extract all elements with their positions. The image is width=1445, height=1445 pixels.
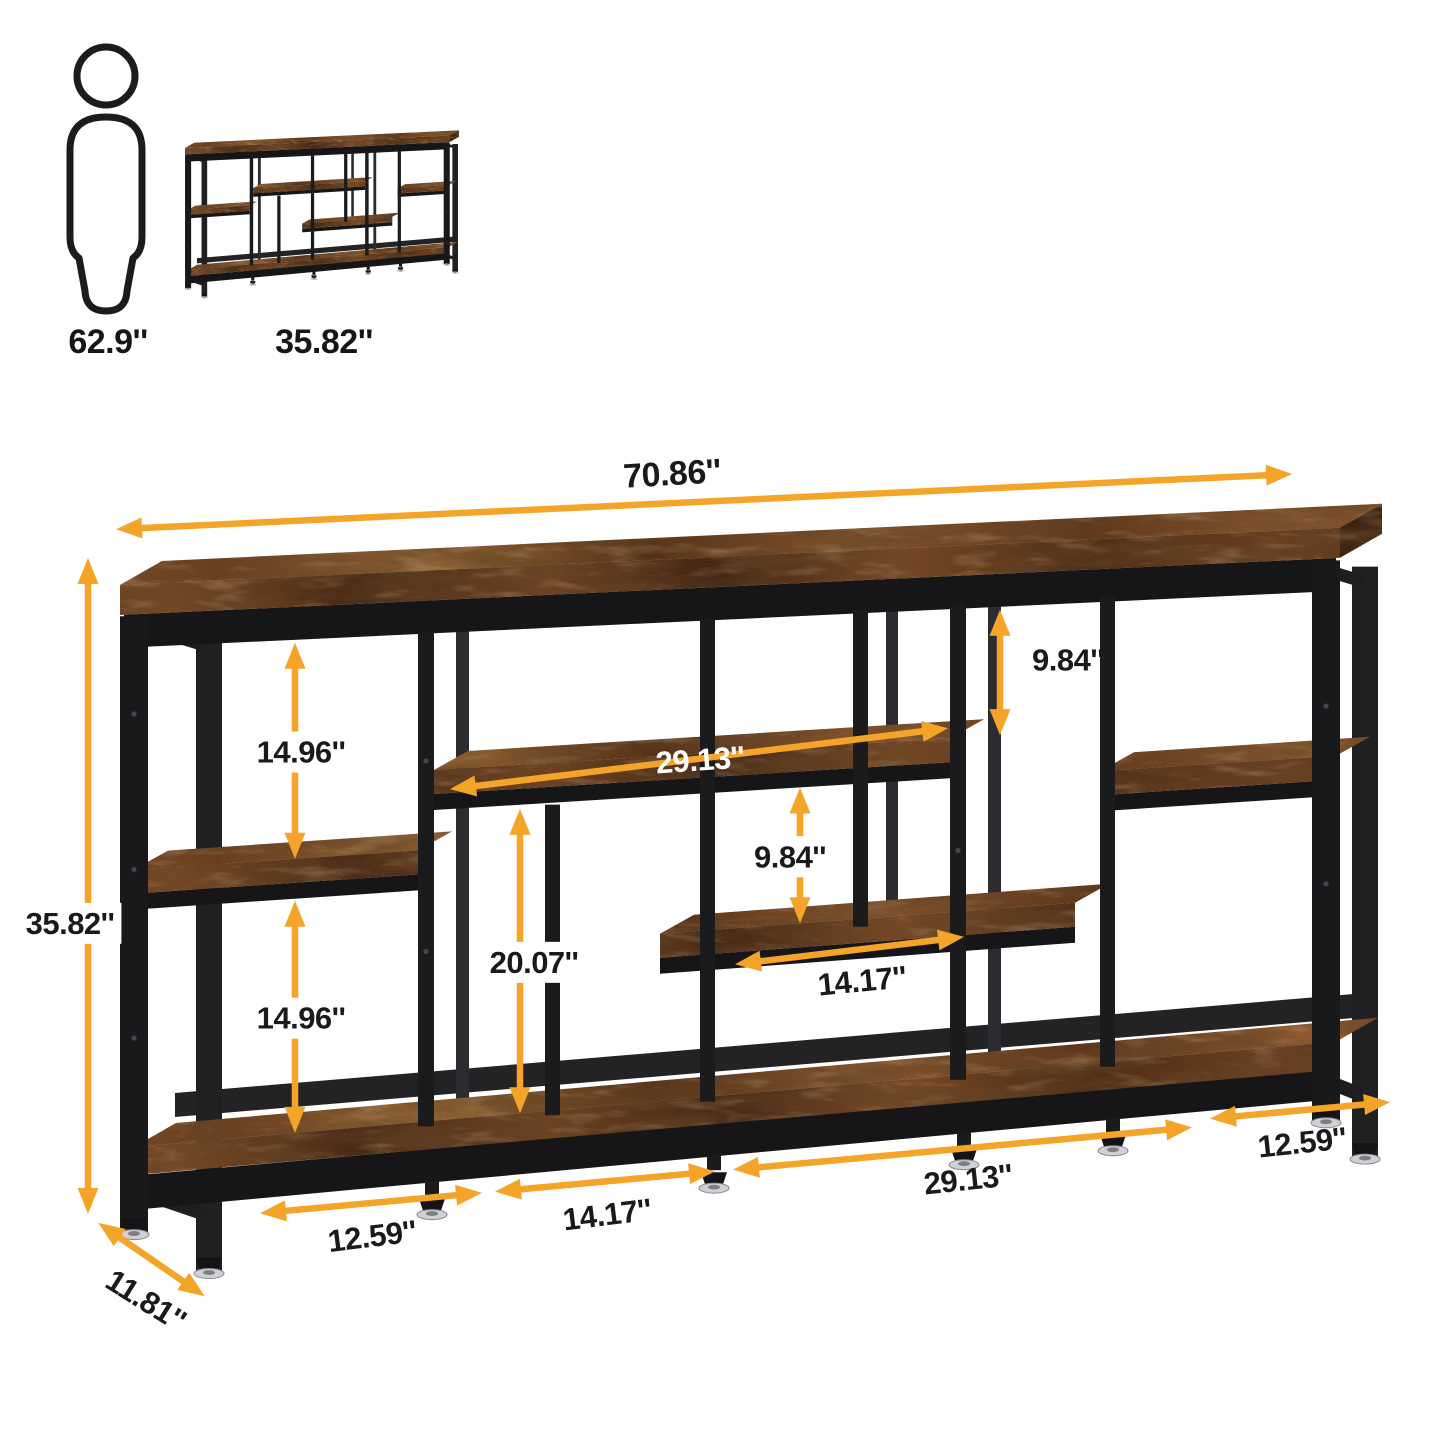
dimension-label-overall-depth: 11.81'': [100, 1262, 192, 1338]
screw-dot: [131, 711, 136, 716]
arrowhead-icon: [78, 558, 99, 584]
dimension-label-text: 70.86'': [622, 452, 722, 495]
foot-pad: [196, 1258, 222, 1270]
rear-right-leg: [1352, 567, 1378, 1158]
dimension-label-left-upper-gap: 14.96'': [250, 732, 353, 773]
arrowhead-icon: [790, 788, 811, 814]
right-leg: [1312, 560, 1340, 1120]
dimension-label-text: 29.13'': [654, 739, 745, 780]
screw-dot: [955, 848, 960, 853]
diagram-stage: 62.9'' 35.82'' 70.86''35.82''14.96''14.9…: [0, 0, 1445, 1445]
dimension-label-middle-shelf-width: 29.13'': [654, 739, 745, 780]
arrowhead-icon: [259, 1200, 287, 1223]
dimension-label-bottom-right-section: 12.59'': [1256, 1121, 1348, 1165]
screw-dot: [1323, 881, 1328, 886]
dimension-label-bottom-left-section: 12.59'': [326, 1213, 418, 1259]
dimension-label-text: 14.96'': [257, 735, 346, 770]
dimension-overall-height: 35.82'': [19, 558, 122, 1214]
dimension-middle-gap: 9.84'': [747, 788, 833, 924]
arrowhead-icon: [1266, 464, 1293, 486]
arrowhead-icon: [510, 809, 531, 835]
person-icon-body: [70, 117, 142, 311]
foot-disc-center: [128, 1231, 140, 1236]
dimension-label-text: 12.59'': [1256, 1121, 1348, 1165]
left-leg: [120, 616, 148, 1232]
screw-dot: [1323, 704, 1328, 709]
screw-dot: [131, 1035, 136, 1040]
foot-disc-center: [426, 1211, 438, 1216]
rear-post: [456, 616, 469, 1100]
dimension-label-text: 11.81'': [100, 1262, 192, 1338]
dimension-label-bottom-third-section: 29.13'': [922, 1157, 1014, 1201]
dimension-label-middle-gap: 9.84'': [747, 836, 833, 877]
arrowhead-icon: [285, 643, 306, 669]
screw-dot: [423, 758, 428, 763]
frame-post: [418, 632, 434, 1127]
person-height-label: 62.9'': [68, 323, 147, 361]
dimension-top-right-gap: 9.84'': [990, 610, 1105, 735]
frame-post: [950, 605, 966, 1080]
arrowhead-icon: [455, 1182, 483, 1205]
dimension-label-text: 12.59'': [326, 1213, 418, 1259]
arrowhead-icon: [116, 517, 143, 539]
screw-dot: [423, 949, 428, 954]
console-table-thumbnail: [185, 130, 459, 298]
dimension-label-text: 9.84'': [1032, 642, 1104, 677]
dimension-label-text: 14.96'': [257, 1001, 346, 1036]
dimension-label-left-lower-gap: 14.96'': [250, 998, 353, 1039]
frame-post: [700, 618, 715, 1102]
dimension-label-text: 35.82'': [26, 906, 115, 941]
dimension-overall-depth: 11.81'': [92, 1214, 210, 1338]
stub-leg: [1106, 1118, 1120, 1133]
person-icon-head: [77, 47, 135, 105]
dimension-left-upper-gap: 14.96'': [250, 643, 353, 859]
screw-dot: [131, 867, 136, 872]
foot-pad: [1352, 1143, 1378, 1155]
dimension-label-text: 29.13'': [922, 1157, 1014, 1201]
arrowhead-icon: [78, 1188, 99, 1214]
dimension-label-center-height: 20.07'': [483, 942, 586, 983]
stub-leg: [707, 1155, 721, 1171]
foot-disc-center: [1107, 1147, 1119, 1152]
dimension-label-text: 14.17'': [561, 1192, 653, 1238]
dimension-line: [517, 1173, 693, 1189]
frame-post: [853, 610, 868, 927]
arrowhead-icon: [494, 1179, 522, 1202]
dimension-label-text: 20.07'': [490, 945, 579, 980]
dimension-label-overall-height: 35.82'': [19, 903, 122, 944]
stub-leg: [957, 1132, 971, 1147]
arrowhead-icon: [1165, 1117, 1193, 1140]
arrowhead-icon: [285, 901, 306, 927]
dimension-label-middle-shelf-section-width: 14.17'': [816, 959, 908, 1002]
foot-disc-center: [203, 1270, 215, 1275]
foot-disc-center: [1359, 1156, 1371, 1161]
dimension-label-top-right-gap: 9.84'': [1032, 642, 1104, 677]
dimension-label-text: 14.17'': [816, 959, 908, 1002]
dimension-label-bottom-second-section: 14.17'': [561, 1192, 653, 1238]
dimension-label-overall-width: 70.86'': [622, 452, 722, 495]
arrowhead-icon: [732, 1157, 760, 1180]
foot-disc-center: [708, 1185, 720, 1190]
foot-pad: [121, 1219, 147, 1231]
thumbnail-height-label: 35.82'': [275, 323, 373, 361]
product-dimension-diagram: 62.9'' 35.82'' 70.86''35.82''14.96''14.9…: [0, 0, 1445, 1445]
dimension-label-text: 9.84'': [754, 839, 826, 874]
